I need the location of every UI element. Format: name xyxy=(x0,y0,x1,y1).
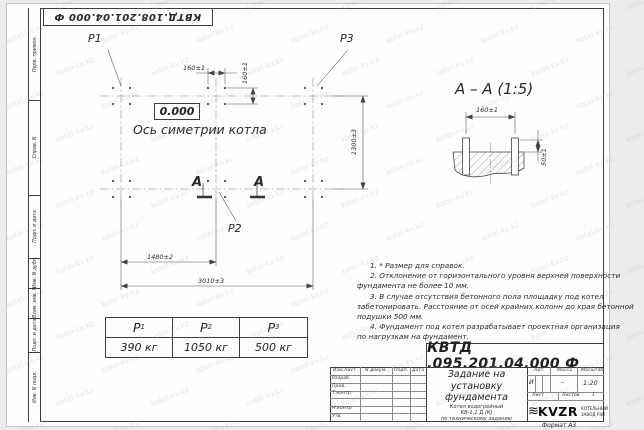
logo-kvzr-text: KVZR xyxy=(538,404,578,419)
note-line: 4. Фундамент под котел разрабатывает про… xyxy=(357,322,604,332)
main-designation-cell: КВТД .095.201.04.000 Ф xyxy=(426,343,604,367)
p-base: P xyxy=(267,320,275,335)
section-letter-left: А xyxy=(192,176,202,189)
tb-col-izm-list: Изм.Лист xyxy=(333,369,356,374)
dim-160-horizontal: 160±1 xyxy=(183,65,205,72)
logo-caption-line1: КОТЕЛЬНЫЙ xyxy=(581,406,608,411)
title-block-grid-line xyxy=(542,375,543,392)
p-sub: 3 xyxy=(275,323,279,331)
boiler-symmetry-axis-label: Ось симетрии котла xyxy=(133,124,267,137)
tb-doc-subtitle-line1: Котел водогрейный xyxy=(426,405,527,410)
note-line: 1. * Размер для справок. xyxy=(357,261,604,271)
tb-doc-title-line1: Задание на xyxy=(426,370,527,380)
loads-table: P1 P2 P3 390 кг 1050 кг 500 кг xyxy=(105,317,308,358)
elevation-mark: 0.000 xyxy=(154,103,200,120)
logo-waves-icon: ≋ xyxy=(528,404,538,419)
p-sub: 1 xyxy=(141,323,145,331)
note-line: подушки 500 мм. xyxy=(357,312,604,322)
dim-160-vertical: 160±1 xyxy=(242,58,249,88)
loads-table-value-p2: 1050 кг xyxy=(173,338,240,358)
tb-sheets-value: 1 xyxy=(592,394,595,399)
tb-mass-header: Масса xyxy=(557,369,572,374)
loads-table-value-p3: 500 кг xyxy=(240,338,307,358)
title-block-grid-line xyxy=(330,413,426,414)
section-title: А – А (1:5) xyxy=(455,82,533,97)
dim-3010: 3010±3 xyxy=(198,278,224,285)
load-p2-label: P2 xyxy=(228,223,242,234)
drawing-page: Перв. примен. Справ. N Подп. и дата Инв.… xyxy=(0,0,644,430)
dim-1480: 1480±2 xyxy=(147,254,173,261)
tb-doc-title-line3: фундамента xyxy=(426,393,527,403)
technical-notes: 1. * Размер для справок. 2. Отклонение о… xyxy=(357,261,604,343)
p-base: P xyxy=(200,320,208,335)
tb-scale-value: 1:20 xyxy=(583,380,598,387)
section-dim-160: 160±1 xyxy=(476,107,498,114)
tb-row-utv: Утв. xyxy=(332,415,342,420)
centerlines xyxy=(100,78,491,207)
note-line: фундамента не более 10 мм. xyxy=(357,281,604,291)
tb-lit-value: И xyxy=(529,380,534,386)
section-letter-right: А xyxy=(254,176,264,189)
format-label: Формат А3 xyxy=(542,423,576,429)
tb-sheets-label: Листов xyxy=(562,394,580,399)
tb-col-n-dokum: N докум. xyxy=(365,369,387,374)
p-base: P xyxy=(133,320,141,335)
load-p1-label: P1 xyxy=(88,33,102,44)
tb-scale-header: Масштаб xyxy=(581,369,603,374)
note-line: 3. В случае отсутствия бетонного пола пл… xyxy=(357,292,604,302)
logo-caption: КОТЕЛЬНЫЙ ЗАВОД РЭП xyxy=(581,406,608,416)
tb-col-podp: Подп. xyxy=(394,369,408,374)
title-block-grid-line xyxy=(550,367,551,392)
tb-row-nkontr: Н.контр. xyxy=(332,407,353,412)
tb-row-prov: Пров. xyxy=(332,385,346,390)
anchor-bolts-dots xyxy=(112,87,323,198)
title-block-grid-line xyxy=(330,398,426,399)
tb-doc-subtitle-line3: по техническому заданию xyxy=(426,417,527,422)
loads-table-header-p1: P1 xyxy=(106,318,173,338)
note-line: 2. Отклонение от горизонтального уровня … xyxy=(357,271,604,281)
loads-table-header-p3: P3 xyxy=(240,318,307,338)
logo-caption-line2: ЗАВОД РЭП xyxy=(581,412,608,417)
title-block-grid-line xyxy=(558,392,559,400)
company-logo: ≋ KVZR КОТЕЛЬНЫЙ ЗАВОД РЭП xyxy=(528,402,603,421)
section-view-geometry xyxy=(453,138,524,177)
dim-1300: 1300±3 xyxy=(351,123,358,161)
loads-table-value-p1: 390 кг xyxy=(106,338,173,358)
load-p3-label: P3 xyxy=(340,33,354,44)
tb-sheet-label: Лист xyxy=(532,394,544,399)
tb-row-tkontr: Т.контр. xyxy=(332,392,352,397)
anchor-bolt-right xyxy=(512,138,519,175)
tb-row-razrab: Разраб. xyxy=(332,377,350,382)
elevation-value: 0.000 xyxy=(160,105,195,118)
title-block-grid-line xyxy=(535,375,536,392)
tb-mass-value: – xyxy=(561,380,564,386)
tb-col-data: Дата xyxy=(412,369,424,374)
note-line: забетонировать. Расстояние от осей крайн… xyxy=(357,302,604,312)
p-sub: 2 xyxy=(208,323,212,331)
title-block-grid-line xyxy=(527,400,604,401)
tb-doc-title-line2: установку xyxy=(426,382,527,392)
anchor-bolt-left xyxy=(463,138,470,175)
tb-lit-header: Лит. xyxy=(534,369,545,374)
section-dim-50: 50±1 xyxy=(541,142,548,172)
loads-table-header-p2: P2 xyxy=(173,318,240,338)
title-block-grid-line xyxy=(577,367,578,392)
title-block-grid-line xyxy=(527,375,604,376)
